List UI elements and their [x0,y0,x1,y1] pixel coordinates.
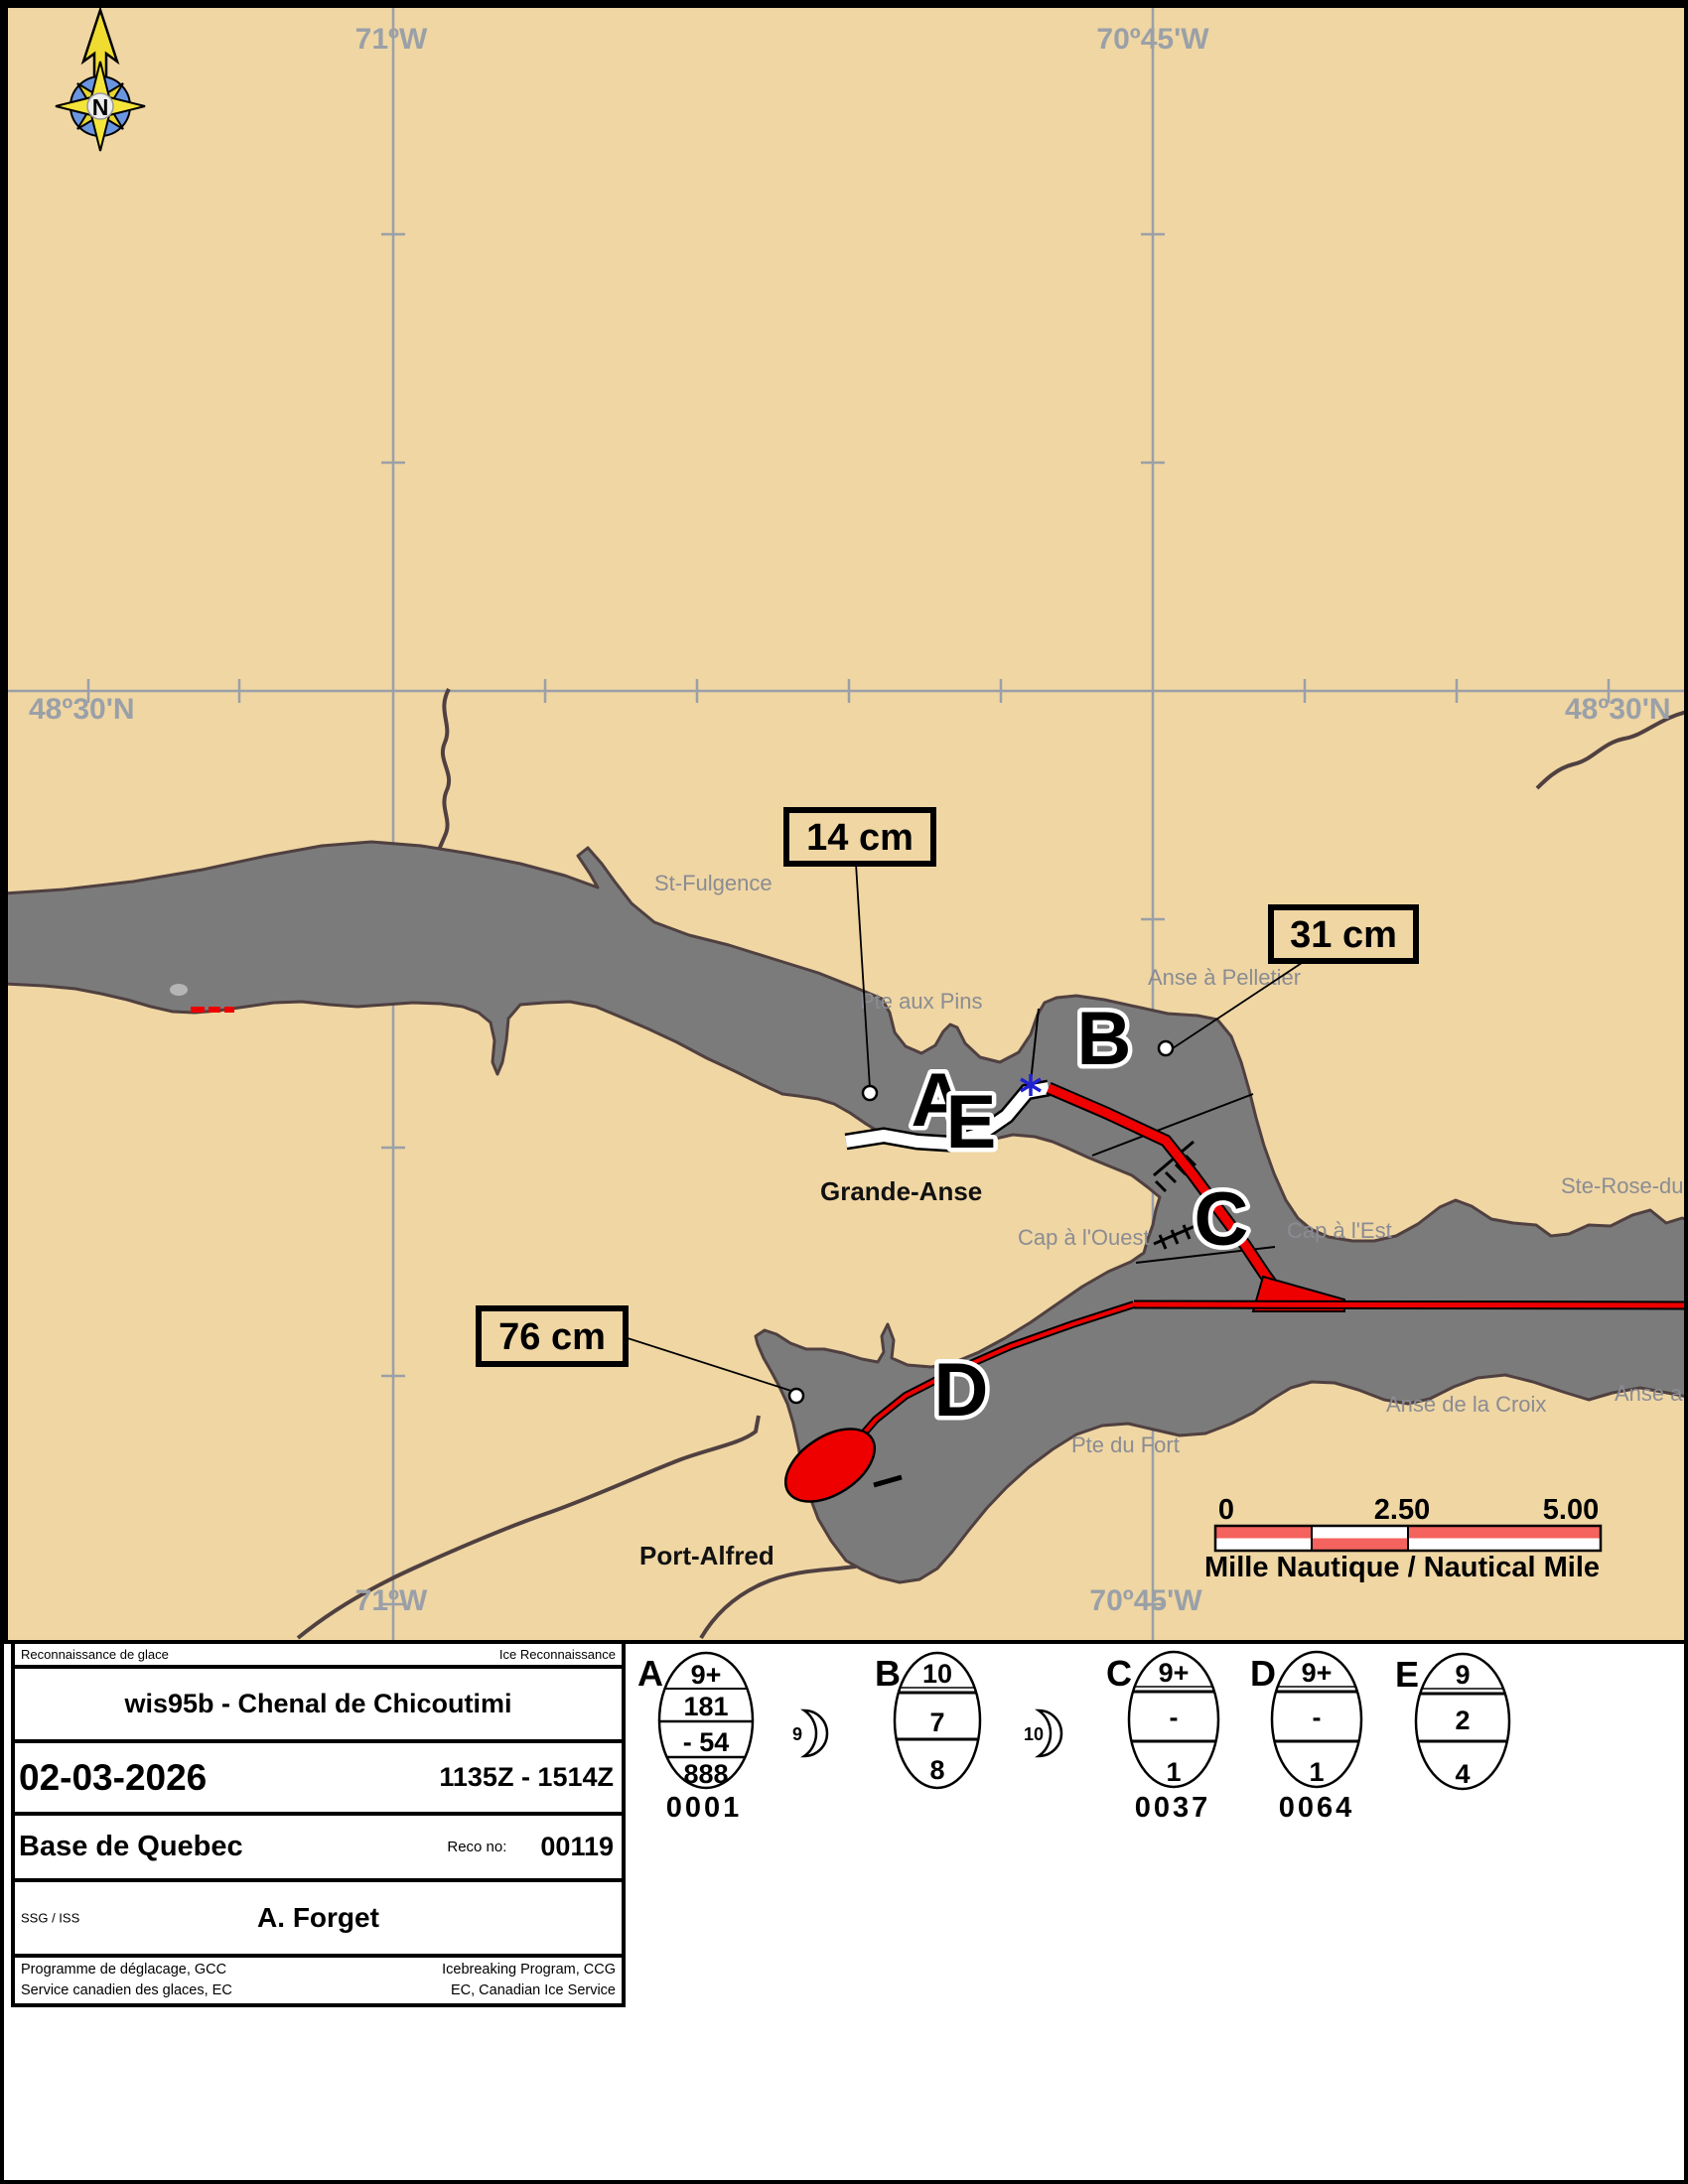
egg-b-row1: 10 [922,1659,952,1689]
grid-label-lon-bottom-right: 70º45'W [1089,1584,1202,1617]
egg-a-row1: 9+ [691,1660,722,1690]
grid-label-lon-bottom-left: 71ºW [355,1584,428,1617]
egg-a-row4: 888 [683,1759,728,1789]
place-pte-du-fort: Pte du Fort [1071,1433,1180,1457]
place-ste-rose: Ste-Rose-du-N [1561,1173,1688,1198]
egg-c-letter: C [1106,1653,1132,1694]
thickness-label-76cm: 76 cm [498,1316,606,1358]
egg-a-row3: - 54 [683,1727,730,1757]
egg-a-row2: 181 [683,1692,728,1721]
footer-program-fr: Programme de déglacage, GCC Service cana… [21,1960,232,2001]
place-cap-a-l-est: Cap à l'Est [1287,1218,1392,1243]
base-name: Base de Quebec [19,1831,447,1863]
place-anse-de-la-croix: Anse de la Croix [1386,1392,1546,1417]
panel-header-left: Reconnaissance de glace [21,1647,169,1662]
ice-reconnaissance-chart: St-Fulgence Pte aux Pins Anse à Pelletie… [0,0,1688,2184]
egg-c-row3: 1 [1166,1757,1181,1787]
place-st-fulgence: St-Fulgence [654,871,773,895]
egg-e-letter: E [1395,1654,1419,1695]
panel-title-row: wis95b - Chenal de Chicoutimi [15,1669,622,1743]
grid-label-lon-top-right: 70º45'W [1096,23,1209,56]
scale-caption: Mille Nautique / Nautical Mile [1204,1552,1600,1583]
info-panel: Reconnaissance de glace Ice Reconnaissan… [11,1640,626,2007]
place-pte-aux-pins: Pte aux Pins [860,989,983,1014]
egg-e-row3: 4 [1455,1759,1470,1789]
zone-label-c: C [1195,1177,1249,1262]
ice-patch [170,984,188,996]
thickness-label-14cm: 14 cm [806,817,914,859]
moon-a-value: 9 [792,1724,802,1744]
place-port-alfred: Port-Alfred [639,1541,774,1570]
egg-code-area: A 9+ 181 - 54 888 0001 9 B 10 7 8 10 C [637,1652,1513,1824]
panel-footer-row: Programme de déglacage, GCC Service cana… [15,1958,622,2003]
scale-label-end: 5.00 [1543,1494,1599,1526]
moon-icon-a [804,1710,827,1756]
egg-d-row2: - [1313,1703,1322,1732]
egg-a-letter: A [637,1653,663,1694]
panel-date-row: 02-03-2026 1135Z - 1514Z [15,1743,622,1816]
zone-label-d: D [934,1348,989,1433]
chart-time-range: 1135Z - 1514Z [439,1762,614,1793]
egg-c-code: 0037 [1135,1792,1211,1824]
measurement-point-31cm [1159,1041,1173,1055]
egg-d-row3: 1 [1309,1757,1324,1787]
observer-name: A. Forget [15,1902,622,1934]
egg-c-row2: - [1170,1703,1179,1732]
grid-label-lat-left: 48º30'N [29,693,135,726]
place-anse-a-pelletier: Anse à Pelletier [1148,965,1301,990]
reco-number-value: 00119 [540,1832,614,1862]
panel-header-right: Ice Reconnaissance [499,1647,616,1662]
grid-label-lat-right: 48º30'N [1565,693,1671,726]
ssg-label: SSG / ISS [21,1910,79,1925]
egg-b-row3: 8 [929,1755,944,1785]
place-cap-a-l-ouest: Cap à l'Ouest [1018,1225,1150,1250]
panel-observer-row: SSG / ISS A. Forget [15,1882,622,1957]
egg-b-letter: B [875,1653,901,1694]
place-anse-au: Anse au [1615,1381,1688,1406]
egg-a-code: 0001 [666,1792,743,1824]
grid-label-lon-top-left: 71ºW [355,23,428,56]
panel-base-row: Base de Quebec Reco no: 00119 [15,1816,622,1882]
zone-label-e-map: E [946,1080,997,1164]
map-area: St-Fulgence Pte aux Pins Anse à Pelletie… [4,4,1688,1642]
egg-d-letter: D [1250,1653,1276,1694]
compass-north-label: N [92,94,109,120]
panel-header-row: Reconnaissance de glace Ice Reconnaissan… [15,1644,622,1669]
zone-label-b: B [1077,997,1132,1081]
place-grande-anse: Grande-Anse [820,1176,982,1206]
egg-d-code: 0064 [1279,1792,1355,1824]
egg-c-row1: 9+ [1159,1658,1190,1688]
scale-label-mid: 2.50 [1374,1494,1430,1526]
egg-e-row2: 2 [1455,1706,1470,1735]
egg-e-row1: 9 [1455,1660,1470,1690]
measurement-point-76cm [789,1389,803,1403]
scale-label-start: 0 [1218,1494,1234,1526]
egg-d-row1: 9+ [1302,1658,1333,1688]
chart-title: wis95b - Chenal de Chicoutimi [124,1689,511,1719]
chart-date: 02-03-2026 [19,1757,207,1799]
reco-number-label: Reco no: [447,1839,506,1855]
egg-b-row2: 7 [929,1707,944,1737]
moon-b-value: 10 [1024,1724,1044,1744]
measurement-point-14cm [863,1086,877,1100]
thickness-label-31cm: 31 cm [1290,914,1397,956]
footer-program-en: Icebreaking Program, CCG EC, Canadian Ic… [442,1960,616,2001]
